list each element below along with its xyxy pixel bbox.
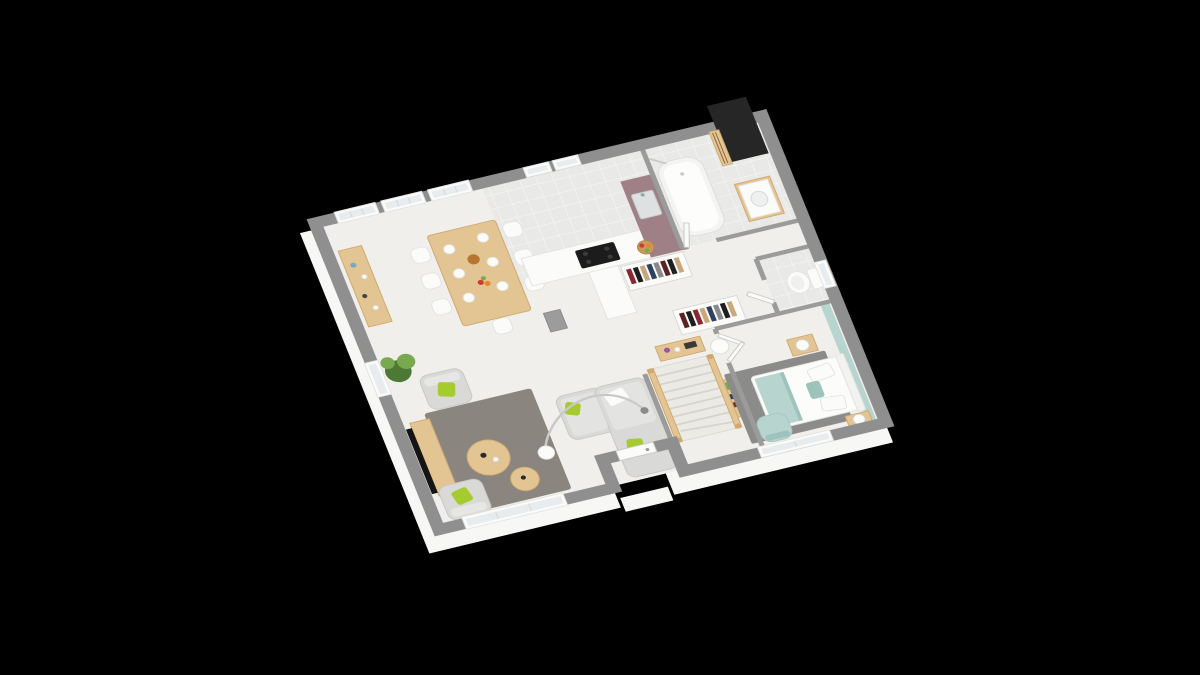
bathroom-door <box>684 223 689 247</box>
green-pillow <box>438 382 456 397</box>
pillow <box>820 395 847 411</box>
floor-plan-render <box>0 0 1200 675</box>
floor-plan-svg <box>0 0 1200 675</box>
